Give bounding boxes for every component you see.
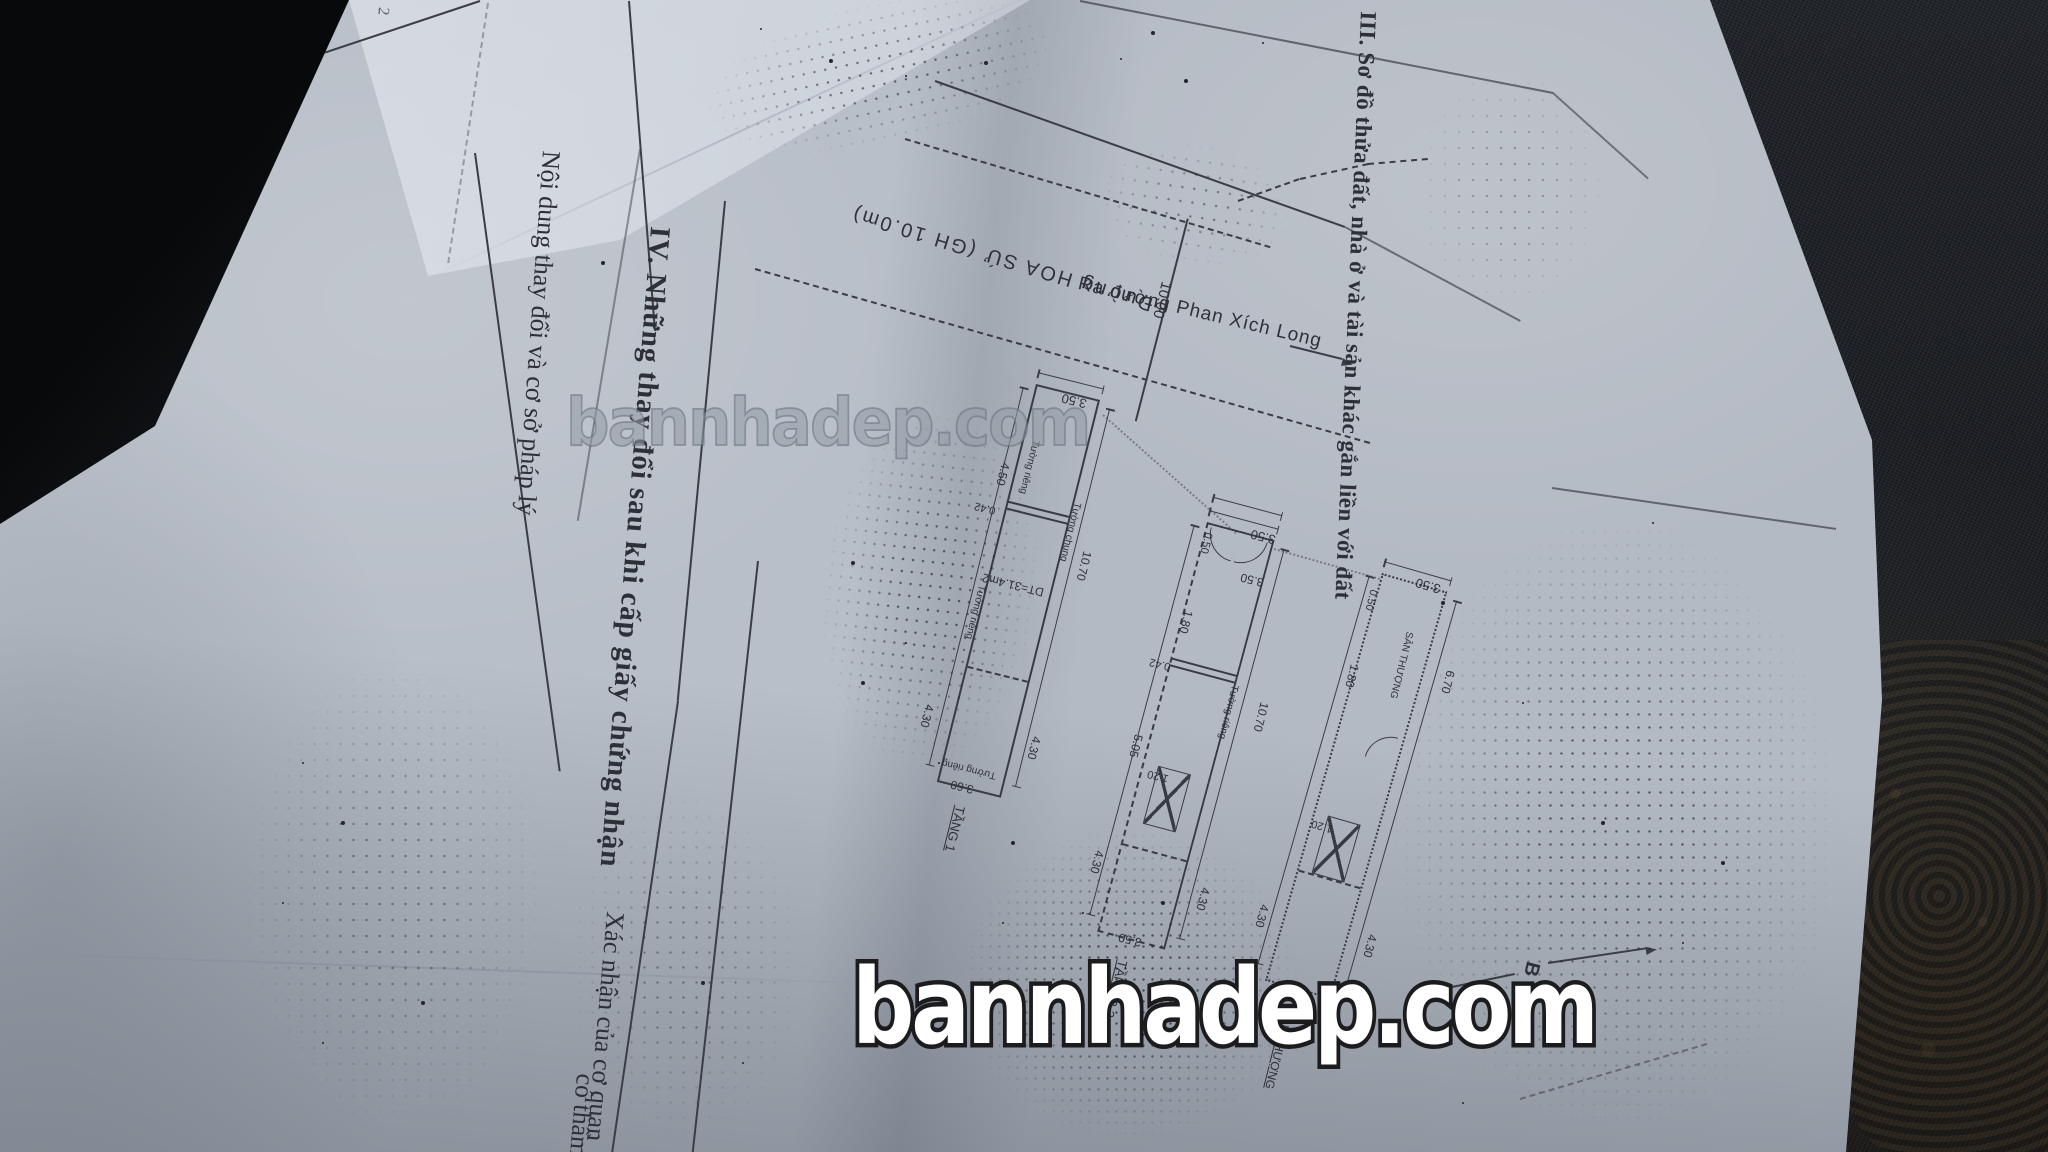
photocopy-noise [679,0,1082,188]
photocopy-noise [230,640,560,1150]
certificate-page: III. Sơ đồ thửa đất, nhà ở và tài sản kh… [0,0,2048,1152]
photo-of-land-certificate: III. Sơ đồ thửa đất, nhà ở và tài sản kh… [0,0,2048,1152]
map-annotation: 5.05 [1126,733,1145,759]
photocopy-noise [1410,60,1610,320]
setback-dotted-line [1274,548,1380,580]
map-annotation: 0.42 [1148,656,1172,673]
photocopy-noise [560,780,810,1150]
section-iii-heading: III. Sơ đồ thửa đất, nhà ở và tài sản kh… [1329,11,1381,601]
page-mark: 2 [373,6,392,16]
setback-dotted-line [1102,414,1236,534]
map-annotation: 10.70 [1074,550,1095,583]
direction-note-label: Ra đường Phan Xích Long [1076,273,1324,353]
map-annotation: 10.70 [1251,701,1272,734]
wall-section [1169,657,1237,683]
watermark-center: bannhadep.com [566,384,1089,461]
watermark-bottom-fill: bannhadep.com [852,946,1596,1068]
photocopy-noise [1082,126,1308,284]
section-iv-heading: IV. Những thay đổi sau khi cấp giấy chứn… [593,225,676,868]
